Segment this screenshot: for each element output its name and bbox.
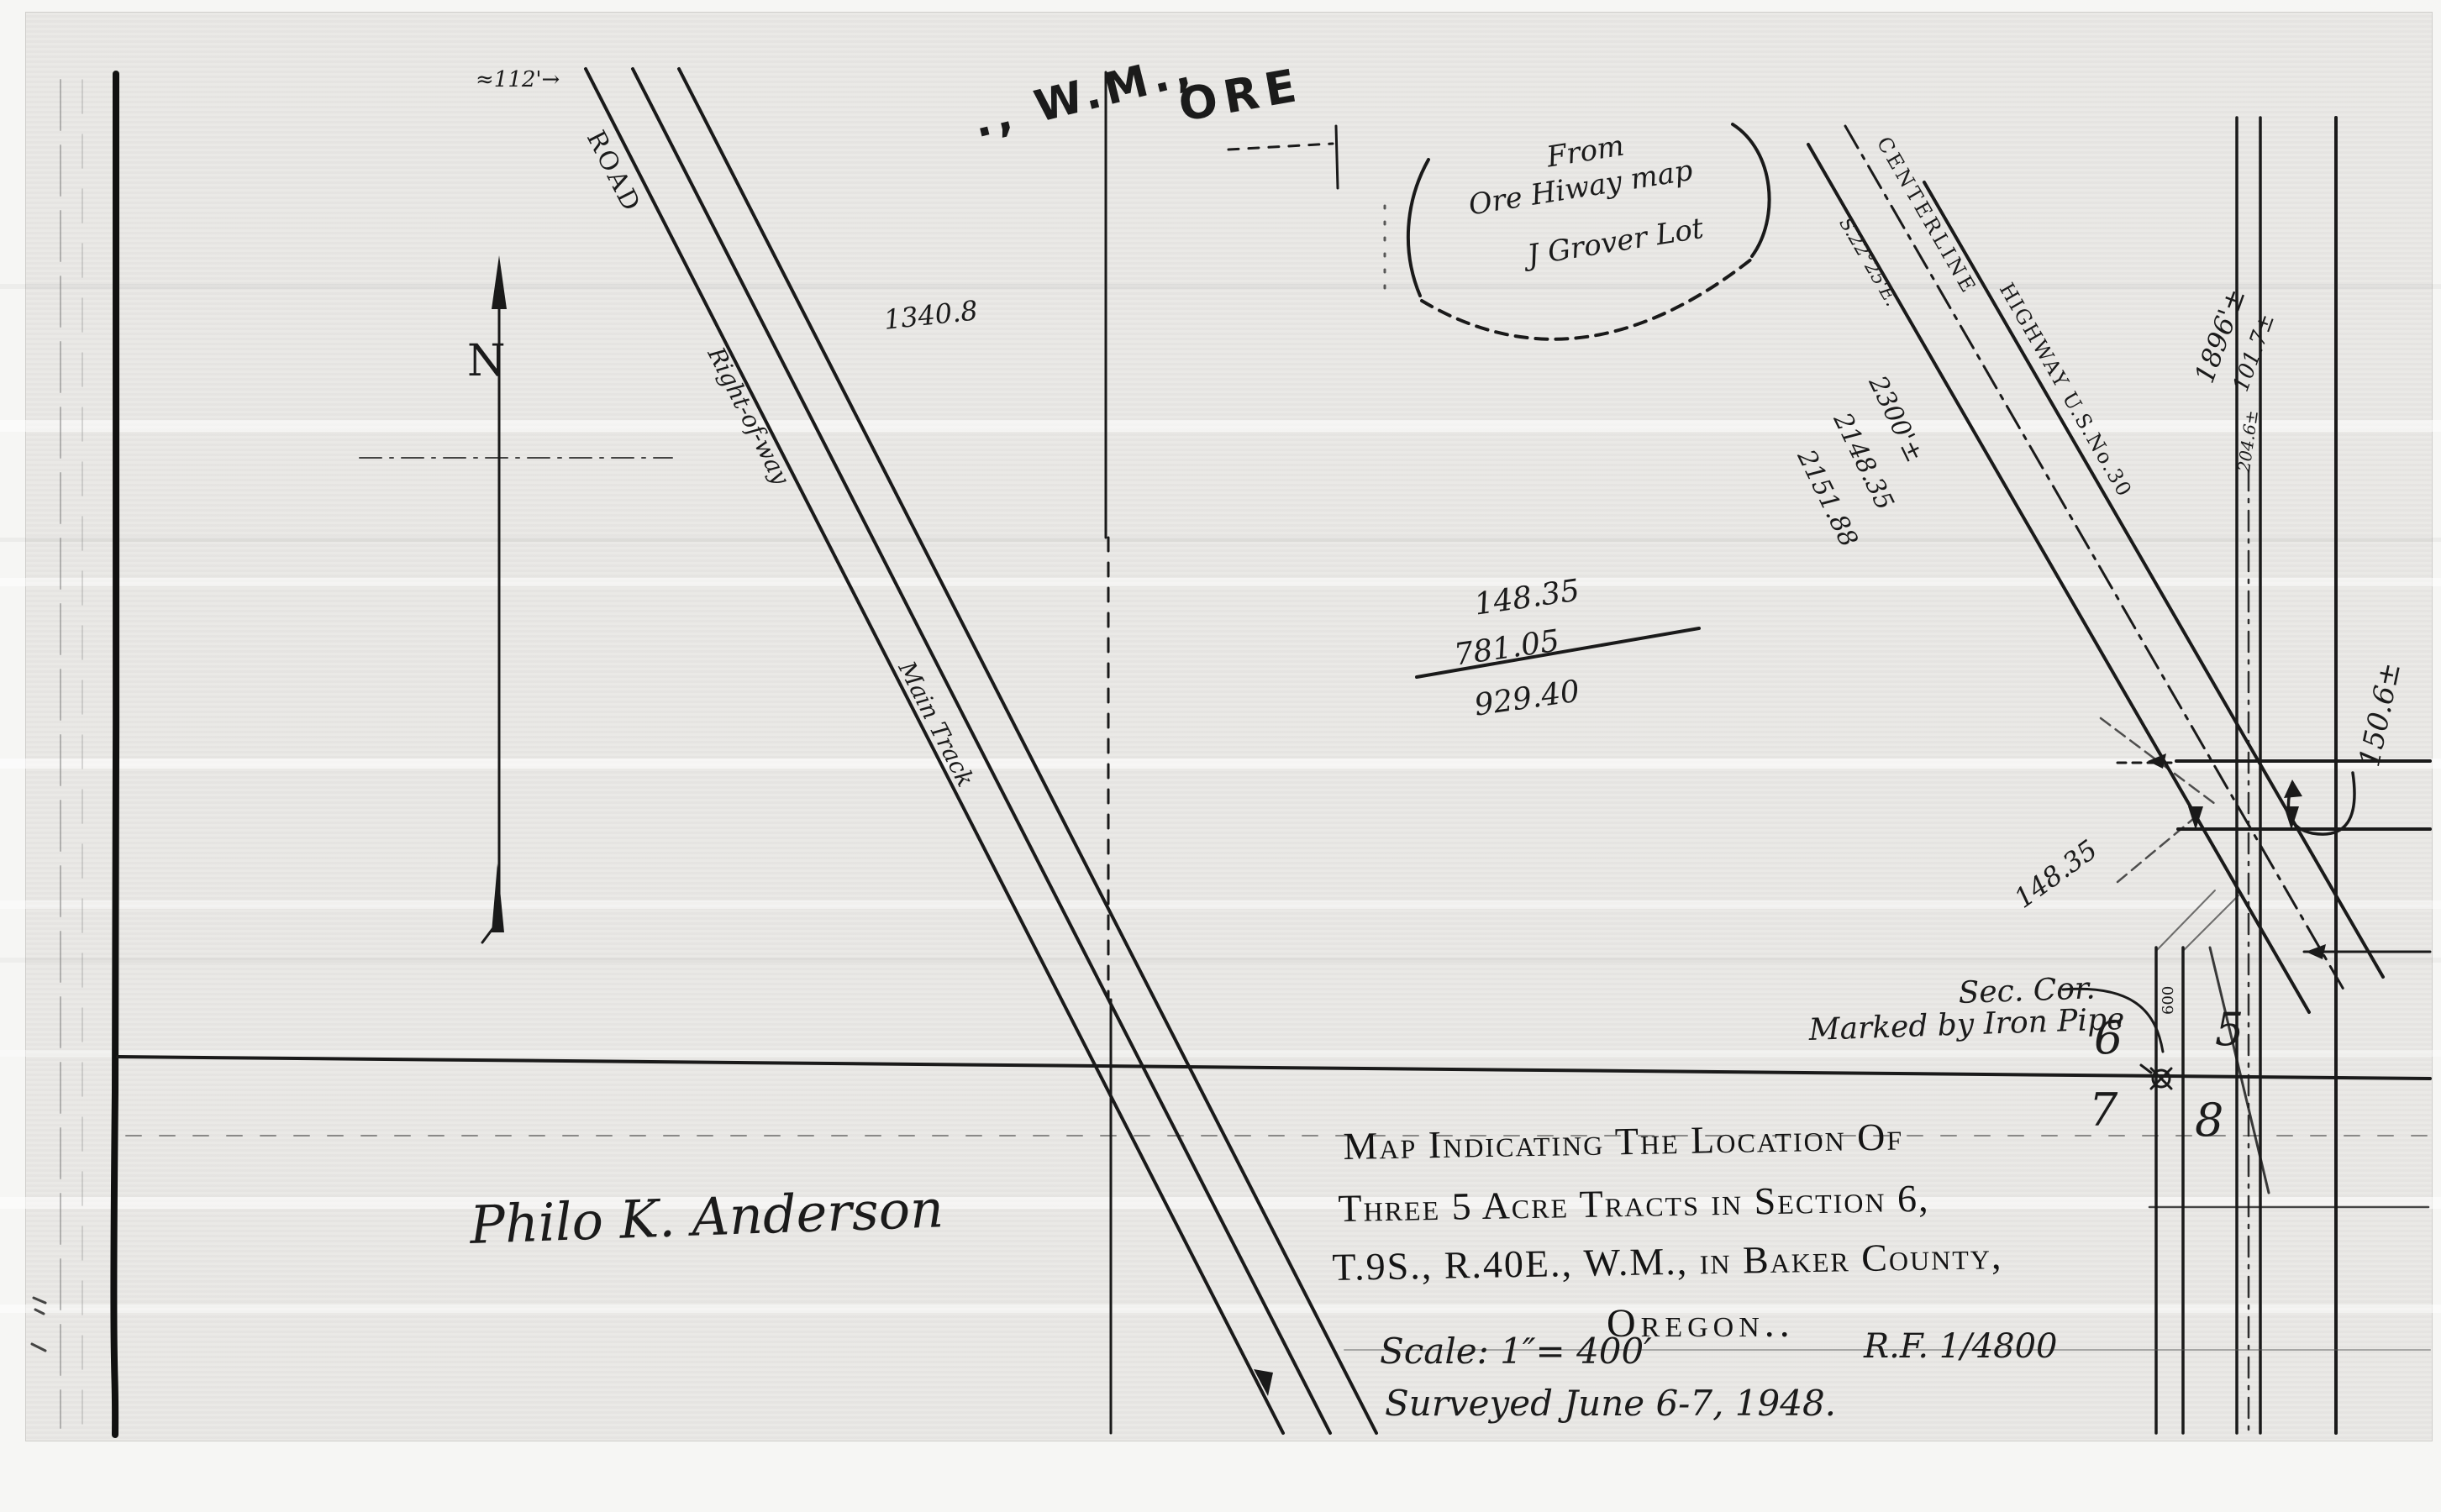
survey-map-scan: ., W.M., ORE N ≈112'→ ROAD Right-of-way … — [0, 0, 2441, 1512]
north-label: N — [467, 336, 506, 386]
margin-mark — [32, 1344, 45, 1351]
highway-lines — [1808, 126, 2383, 1012]
section-number-7: 7 — [2089, 1084, 2117, 1137]
section-number-8: 8 — [2195, 1094, 2223, 1147]
distance-600: 600 — [2160, 986, 2177, 1015]
header-dash-line — [1228, 144, 1333, 150]
margin-mark — [34, 1298, 45, 1314]
north-south-road — [2156, 118, 2336, 1433]
section-number-5: 5 — [2215, 1003, 2244, 1056]
map-linework — [0, 0, 2441, 1512]
representative-fraction: R.F. 1/4800 — [1864, 1327, 2058, 1366]
section-number-6: 6 — [2094, 1011, 2123, 1064]
header-tick — [1336, 126, 1338, 188]
section-line-horizontal — [118, 1057, 2430, 1079]
junction-dimension-lines — [2101, 718, 2430, 1207]
surveyed-date: Surveyed June 6-7, 1948. — [1385, 1383, 1836, 1424]
scale-note: Scale: 1″= 400′ — [1380, 1331, 1652, 1372]
road-width-note: ≈112'→ — [476, 67, 560, 92]
north-arrow — [360, 255, 672, 942]
west-boundary-line — [113, 74, 116, 1435]
center-section-line — [1106, 72, 1111, 1433]
